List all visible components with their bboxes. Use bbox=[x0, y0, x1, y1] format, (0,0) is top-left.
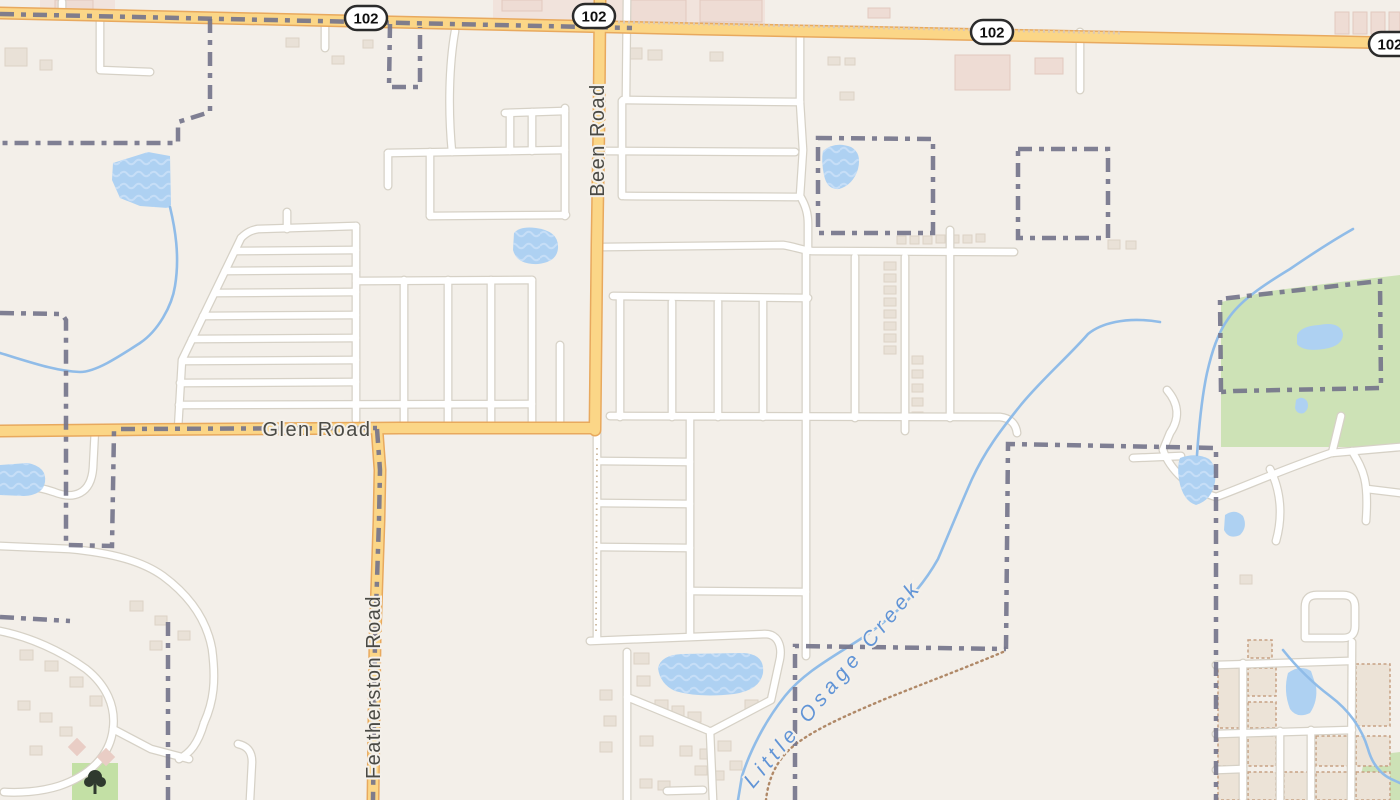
building bbox=[363, 40, 373, 48]
green-area bbox=[1221, 275, 1400, 447]
route-shield: 102 bbox=[971, 20, 1013, 44]
svg-text:102: 102 bbox=[581, 9, 606, 26]
building bbox=[20, 650, 33, 660]
minor-road bbox=[235, 250, 356, 251]
platted-block bbox=[1218, 772, 1240, 800]
building bbox=[1353, 12, 1367, 34]
minor-road-casing bbox=[1305, 595, 1355, 638]
building bbox=[884, 334, 896, 342]
building bbox=[18, 701, 30, 710]
minor-road bbox=[179, 723, 204, 759]
building bbox=[976, 234, 985, 242]
minor-road bbox=[1216, 769, 1243, 770]
minor-road bbox=[1305, 595, 1355, 638]
building bbox=[1389, 12, 1400, 34]
minor-road bbox=[1367, 489, 1400, 493]
building bbox=[637, 676, 650, 686]
platted-block bbox=[1284, 772, 1308, 800]
creek-west bbox=[0, 207, 177, 372]
minor-road bbox=[180, 382, 356, 383]
building bbox=[130, 601, 143, 611]
building bbox=[286, 38, 299, 47]
minor-road bbox=[600, 151, 795, 152]
minor-road-casing bbox=[0, 631, 114, 792]
minor-road bbox=[597, 503, 690, 504]
platted-block bbox=[1248, 640, 1272, 658]
building bbox=[5, 48, 27, 66]
platted-block bbox=[1218, 736, 1240, 766]
building bbox=[695, 766, 707, 775]
minor-road bbox=[690, 591, 806, 592]
minor-road-casing bbox=[100, 18, 150, 72]
minor-road bbox=[100, 18, 150, 72]
building bbox=[178, 631, 190, 640]
building bbox=[600, 690, 612, 700]
building bbox=[150, 641, 162, 650]
minor-road bbox=[710, 731, 713, 800]
minor-road bbox=[624, 196, 797, 197]
building bbox=[955, 55, 1010, 90]
platted-block bbox=[1248, 702, 1276, 728]
building bbox=[1240, 575, 1252, 584]
water-label-little-osage-creek: Little Osage Creek bbox=[739, 575, 926, 792]
building bbox=[912, 398, 923, 406]
building bbox=[502, 0, 542, 11]
building bbox=[640, 779, 652, 788]
platted-block bbox=[1248, 736, 1276, 766]
building bbox=[40, 60, 52, 70]
minor-road bbox=[623, 100, 800, 102]
building bbox=[60, 727, 72, 736]
building bbox=[910, 236, 919, 244]
minor-road bbox=[597, 547, 690, 548]
building bbox=[963, 235, 972, 243]
building bbox=[828, 57, 840, 65]
building bbox=[40, 713, 52, 722]
platted-block bbox=[1248, 772, 1276, 800]
building bbox=[912, 356, 923, 364]
building bbox=[710, 52, 723, 61]
svg-text:102: 102 bbox=[1377, 37, 1400, 54]
minor-road bbox=[225, 270, 356, 271]
building bbox=[718, 741, 731, 751]
pond bbox=[1286, 668, 1316, 715]
building bbox=[1335, 12, 1349, 34]
building bbox=[640, 736, 653, 746]
building bbox=[912, 370, 923, 378]
minor-road bbox=[203, 315, 356, 316]
route-shield: 102 bbox=[1369, 32, 1400, 56]
building bbox=[628, 0, 686, 24]
poi-diamond bbox=[68, 738, 86, 756]
been-road bbox=[595, 0, 600, 430]
building bbox=[634, 653, 649, 664]
road-label-glen: Glen Road bbox=[262, 419, 371, 441]
building bbox=[912, 384, 923, 392]
platted-block bbox=[1248, 668, 1276, 696]
route-shield: 102 bbox=[345, 6, 387, 30]
platted-block bbox=[1356, 664, 1390, 726]
building bbox=[884, 322, 896, 330]
building bbox=[155, 616, 167, 625]
route-shield: 102 bbox=[573, 4, 615, 28]
pond-waves bbox=[658, 653, 763, 695]
road-label-been: Been Road bbox=[587, 83, 609, 197]
svg-text:102: 102 bbox=[353, 11, 378, 28]
minor-road bbox=[1133, 456, 1181, 458]
building bbox=[648, 50, 662, 60]
minor-road bbox=[192, 338, 356, 339]
building bbox=[700, 0, 762, 22]
building bbox=[897, 236, 906, 244]
building bbox=[884, 310, 896, 318]
minor-road bbox=[1352, 451, 1367, 521]
minor-road bbox=[215, 292, 356, 293]
building bbox=[604, 716, 616, 726]
pond-waves bbox=[112, 152, 171, 208]
building bbox=[923, 236, 932, 244]
building bbox=[1108, 240, 1120, 249]
building bbox=[840, 92, 854, 100]
platted-block bbox=[1316, 772, 1348, 800]
minor-road bbox=[388, 150, 565, 153]
building bbox=[884, 274, 896, 282]
platted-block bbox=[1316, 736, 1348, 766]
building bbox=[884, 298, 896, 306]
map-canvas[interactable]: Glen Road Been Road Featherston Road Lit… bbox=[0, 0, 1400, 800]
building bbox=[90, 696, 102, 706]
building bbox=[868, 8, 890, 18]
building bbox=[30, 746, 42, 755]
minor-road bbox=[613, 296, 808, 298]
pond-waves bbox=[822, 145, 859, 189]
pond bbox=[1224, 512, 1245, 537]
building bbox=[45, 661, 58, 671]
svg-text:102: 102 bbox=[979, 25, 1004, 42]
building bbox=[1035, 58, 1063, 74]
building bbox=[845, 58, 855, 65]
platted-block bbox=[1218, 668, 1240, 728]
building bbox=[1371, 12, 1385, 34]
building bbox=[332, 56, 344, 64]
building bbox=[884, 286, 896, 294]
minor-road bbox=[1216, 730, 1352, 734]
minor-road bbox=[179, 404, 532, 405]
building bbox=[600, 742, 612, 752]
building bbox=[884, 346, 896, 354]
minor-road bbox=[597, 461, 690, 462]
building bbox=[680, 746, 692, 756]
minor-road bbox=[183, 360, 356, 361]
minor-road bbox=[667, 790, 703, 791]
building bbox=[1126, 241, 1136, 249]
building bbox=[936, 235, 945, 243]
minor-road bbox=[1216, 661, 1348, 665]
pond-waves bbox=[513, 228, 558, 265]
minor-road bbox=[356, 280, 532, 281]
building bbox=[70, 677, 83, 687]
building bbox=[730, 761, 742, 770]
building bbox=[884, 262, 896, 270]
minor-road bbox=[430, 215, 566, 216]
minor-road bbox=[626, 0, 627, 99]
minor-road bbox=[1351, 642, 1352, 800]
minor-road bbox=[1163, 390, 1177, 450]
pond-waves bbox=[0, 463, 45, 496]
road-label-featherston: Featherston Road bbox=[363, 595, 385, 779]
minor-road bbox=[610, 416, 1017, 433]
